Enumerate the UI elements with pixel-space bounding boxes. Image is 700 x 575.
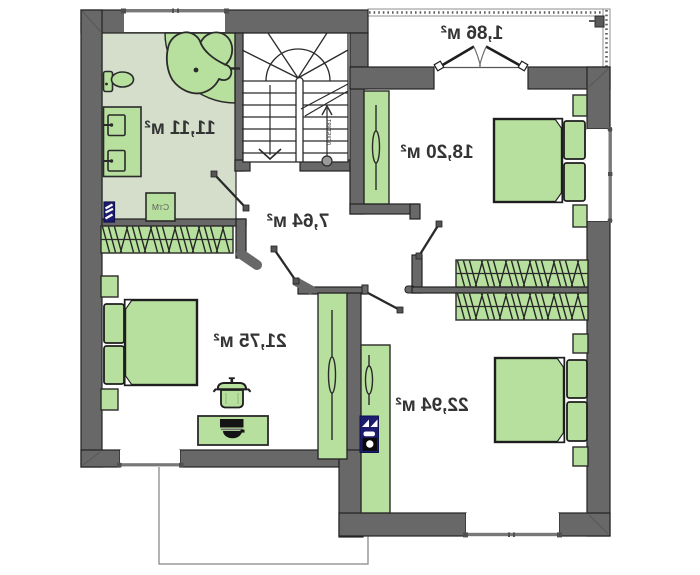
svg-text:22,94 м²: 22,94 м²	[395, 395, 468, 416]
svg-text:11,11 м²: 11,11 м²	[144, 118, 215, 139]
svg-text:21,75 м²: 21,75 м²	[213, 331, 286, 352]
svg-text:18x15x30: 18x15x30	[327, 119, 333, 146]
svg-text:1,86 м²: 1,86 м²	[441, 23, 504, 44]
svg-text:СтМ: СтМ	[152, 202, 169, 212]
svg-text:7,64 м²: 7,64 м²	[267, 211, 330, 232]
svg-text:18,20 м²: 18,20 м²	[400, 142, 473, 163]
